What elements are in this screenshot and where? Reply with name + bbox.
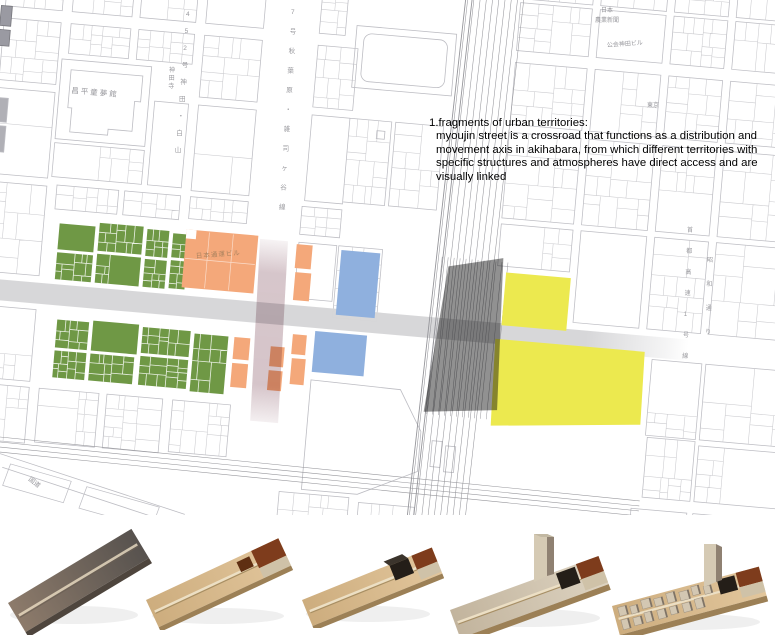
study-models-row (0, 510, 775, 635)
wall-element-side (547, 534, 554, 576)
annotation-line: myoujin street is a crossroad that funct… (436, 130, 769, 143)
nihon-nogyo-shimbun-line1-label: 日本 (601, 6, 613, 14)
model-photo-5 (606, 524, 775, 635)
station-building (360, 33, 448, 88)
site-map-svg: 昌平童夢館 神田寺日本通運ビル日本農業新聞公会神田ビル東京国道452号神田・白山… (0, 0, 775, 515)
kokai-kanda-building-label: 公会神田ビル (607, 39, 643, 49)
kokudo-label: 国道 (27, 474, 43, 489)
annotation-line: specific structures and atmospheres have… (436, 157, 769, 170)
wall-element (534, 534, 547, 582)
territory-yellow (488, 272, 653, 439)
kanda-dera-label: 神田寺 (168, 66, 175, 90)
presentation-page: 昌平童夢館 神田寺日本通運ビル日本農業新聞公会神田ビル東京国道452号神田・白山… (0, 0, 775, 635)
large-vacant-parcel (301, 380, 424, 500)
shohei-domukan-parcel (55, 59, 152, 147)
edge-building (0, 126, 6, 153)
annotation-body: myoujin street is a crossroad that funct… (429, 130, 769, 184)
model-photo-1 (2, 515, 152, 635)
wall-element (704, 544, 716, 587)
shohei-domukan-label: 昌平童夢館 (71, 85, 119, 99)
model-photo-2 (142, 518, 294, 630)
edge-building (0, 5, 12, 26)
annotation-block: 1.fragments of urban territories: myouji… (429, 117, 769, 184)
annotation-line: movement axis in akihabara, from which d… (436, 144, 769, 157)
station-parcel (352, 26, 457, 96)
model-photo-3 (296, 520, 444, 628)
annotation-title: 1.fragments of urban territories: (429, 117, 769, 130)
model-photo-4 (442, 512, 616, 634)
nihon-nogyo-shimbun-line2-label: 農業新聞 (595, 16, 619, 24)
tokyo-label: 東京 (647, 101, 659, 109)
platform (443, 446, 455, 473)
street-grid: 昌平童夢館 (0, 0, 775, 515)
route-7-akihabara-zoshigaya-label: 7号秋葉原・雑司ヶ谷線 (279, 9, 297, 211)
annotation-line: visually linked (436, 171, 769, 184)
route-452-kanda-hakusan-label: 452号神田・白山 (175, 11, 190, 154)
edge-building (0, 29, 10, 46)
akihabara-site-map: 昌平童夢館 神田寺日本通運ビル日本農業新聞公会神田ビル東京国道452号神田・白山… (0, 0, 775, 515)
wall-element-side (716, 544, 722, 582)
shohei-domukan-building (66, 70, 143, 138)
edge-building (0, 98, 8, 123)
